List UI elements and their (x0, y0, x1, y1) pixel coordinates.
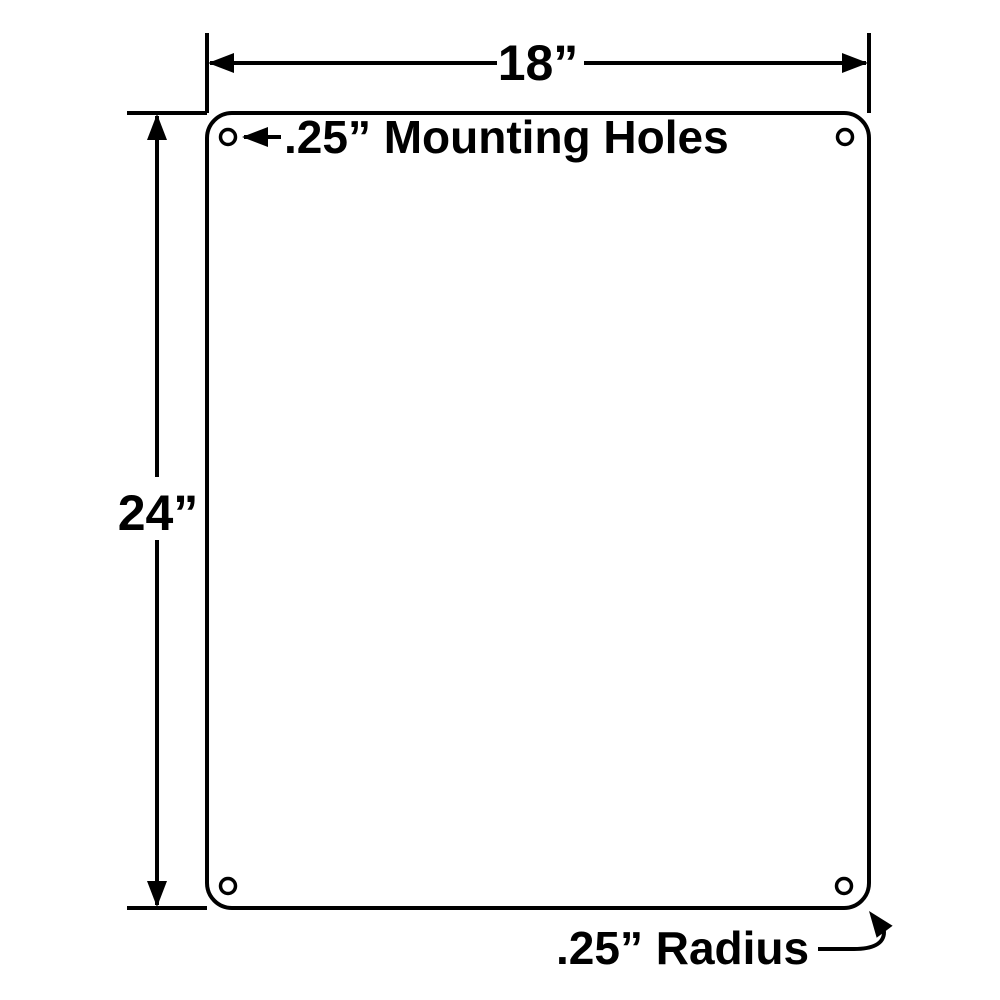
mounting-hole-top-left (221, 130, 236, 145)
width-dimension-label: 18” (498, 35, 579, 91)
mounting-holes-label: .25” Mounting Holes (284, 111, 729, 163)
height-dimension-label: 24” (118, 485, 199, 541)
mounting-hole-top-right (838, 130, 853, 145)
down-arrowhead-icon (147, 881, 167, 907)
radius-label: .25” Radius (556, 922, 809, 974)
mounting-hole-bottom-right (837, 879, 852, 894)
left-arrowhead-icon (208, 53, 234, 73)
panel-drawing-svg: 18” 24” .25” Mounting Holes .25” Radius (0, 0, 1000, 1000)
radius-arrowhead-icon (861, 905, 893, 938)
radius-leader-line (818, 926, 884, 949)
sign-panel (207, 113, 869, 908)
mounting-hole-bottom-left (221, 879, 236, 894)
dimension-diagram: 18” 24” .25” Mounting Holes .25” Radius (0, 0, 1000, 1000)
up-arrowhead-icon (147, 114, 167, 140)
right-arrowhead-icon (842, 53, 868, 73)
